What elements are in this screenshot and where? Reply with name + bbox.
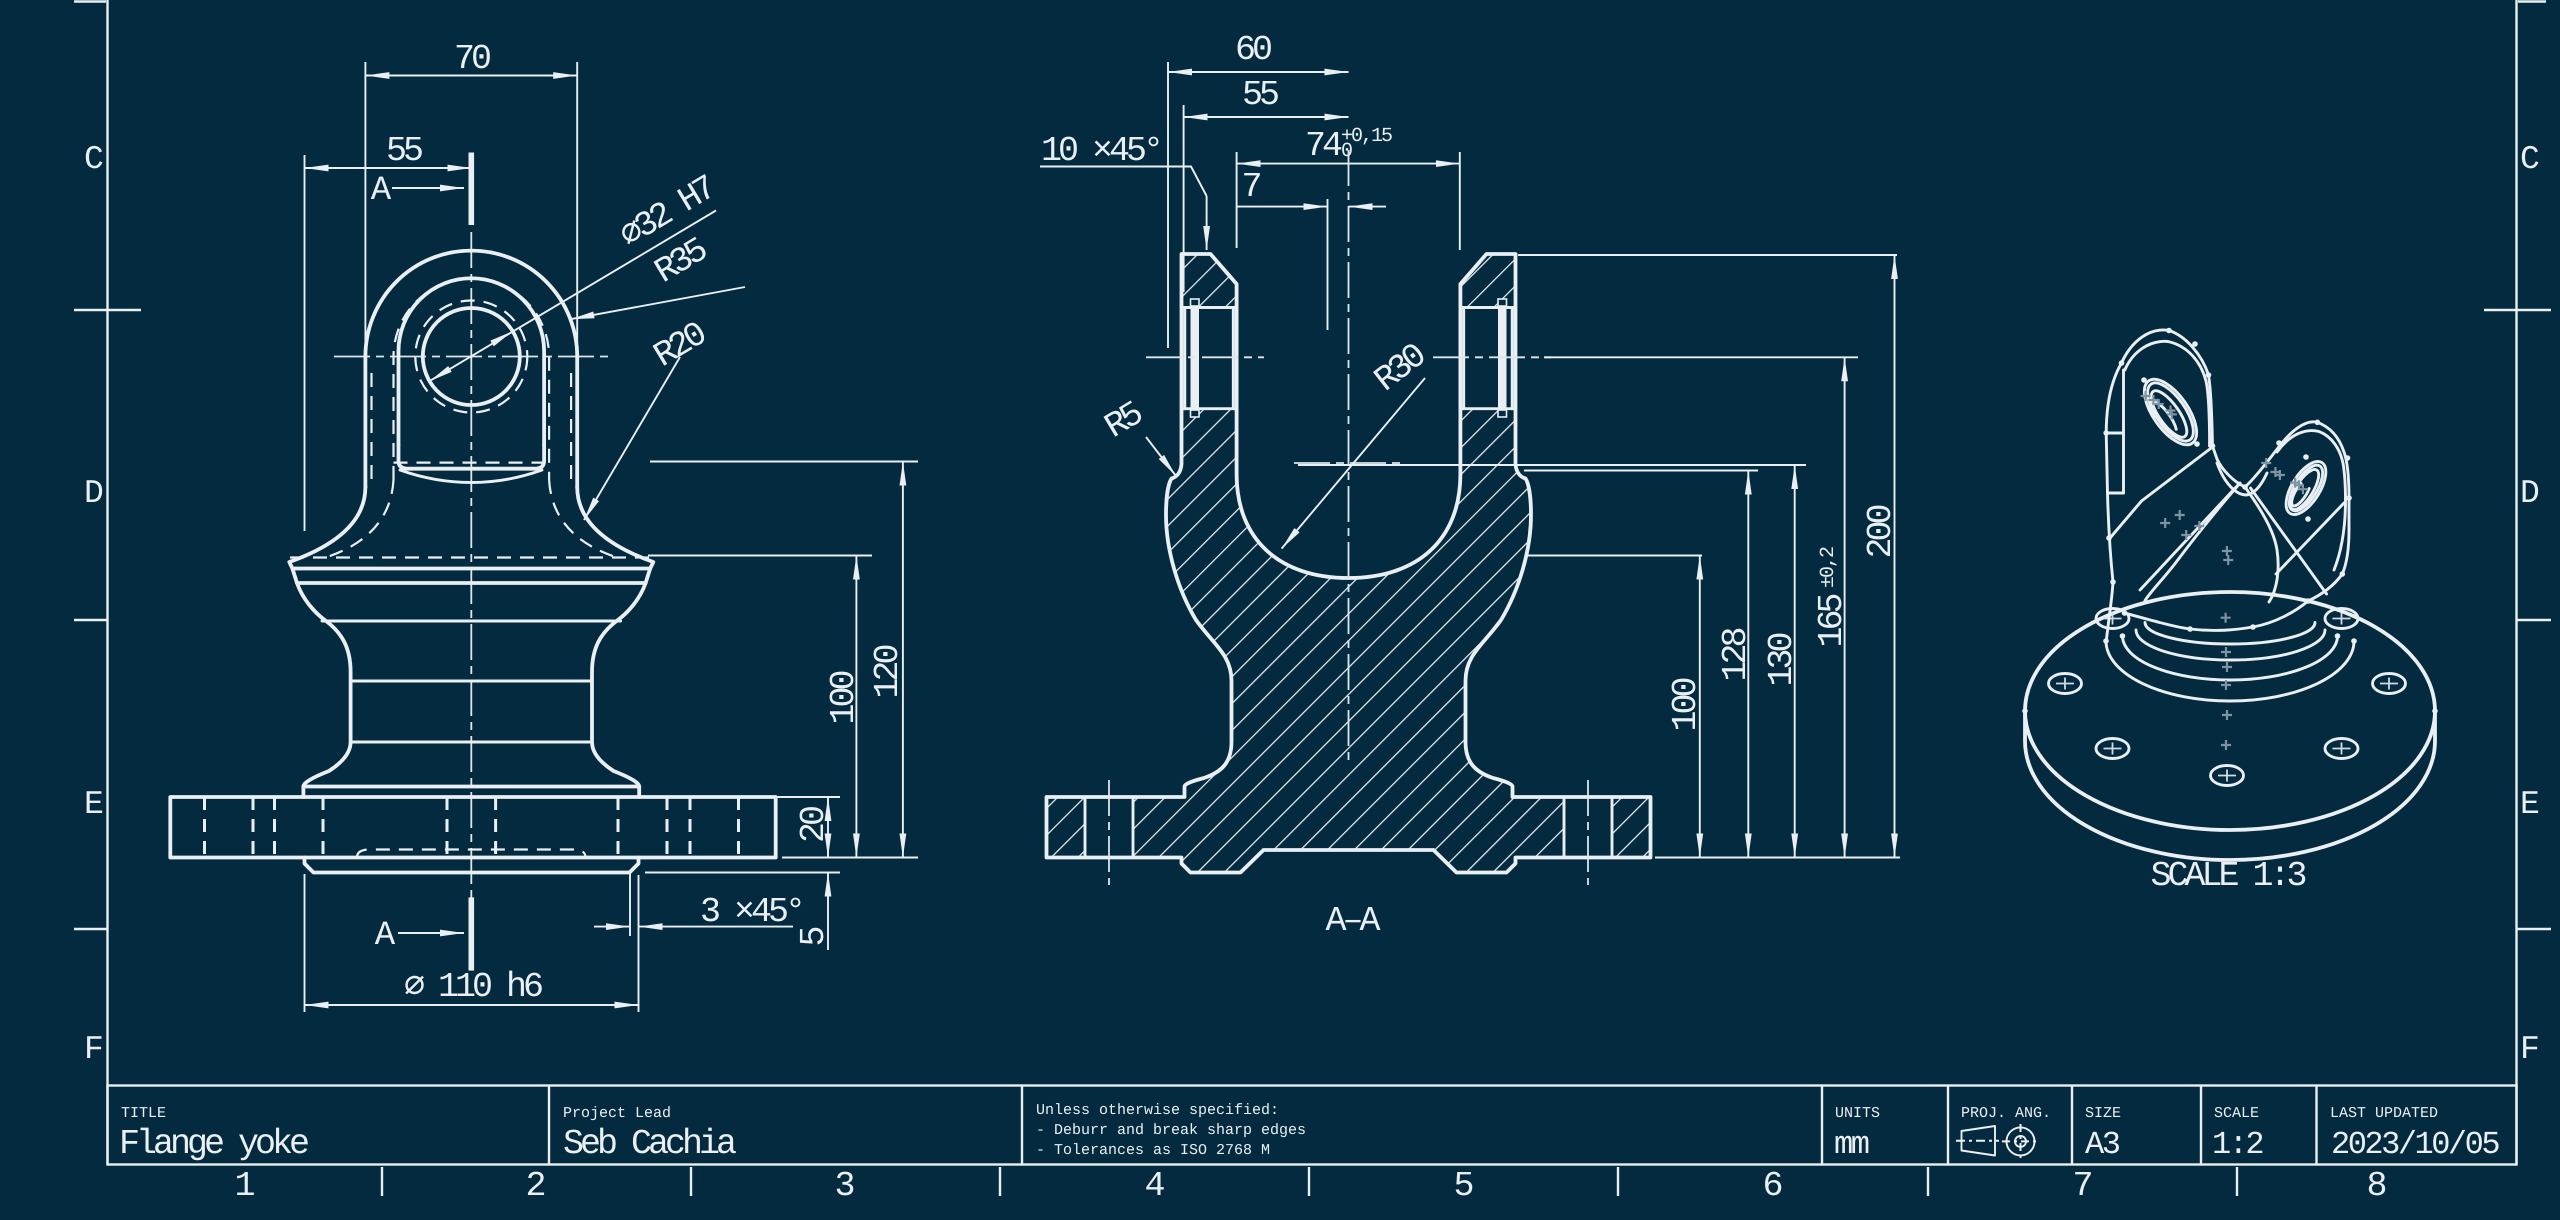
- svg-text:100: 100: [824, 672, 864, 725]
- svg-text:D: D: [84, 475, 104, 512]
- svg-text:Flange yoke: Flange yoke: [119, 1124, 308, 1164]
- svg-text:mm: mm: [1834, 1126, 1869, 1163]
- svg-text:120: 120: [868, 646, 908, 699]
- svg-text:A: A: [375, 917, 396, 955]
- svg-text:LAST UPDATED: LAST UPDATED: [2330, 1105, 2438, 1122]
- svg-text:60: 60: [1235, 30, 1271, 70]
- svg-text:6: 6: [1762, 1166, 1783, 1206]
- svg-text:Project Lead: Project Lead: [563, 1105, 671, 1122]
- svg-text:SCALE 1:3: SCALE 1:3: [2150, 856, 2305, 896]
- svg-text:A3: A3: [2085, 1126, 2120, 1163]
- svg-text:3: 3: [834, 1166, 855, 1206]
- svg-text:165: 165: [1812, 595, 1852, 648]
- svg-text:A–A: A–A: [1325, 901, 1380, 941]
- svg-text:TITLE: TITLE: [121, 1105, 166, 1122]
- svg-text:D: D: [2520, 475, 2540, 512]
- svg-text:E: E: [2520, 786, 2540, 823]
- svg-text:5: 5: [1453, 1166, 1474, 1206]
- svg-text:3 ×45°: 3 ×45°: [700, 892, 802, 932]
- svg-text:128: 128: [1716, 629, 1756, 682]
- svg-text:F: F: [84, 1031, 104, 1068]
- svg-text:- Deburr and break sharp edges: - Deburr and break sharp edges: [1036, 1122, 1306, 1139]
- svg-text:SIZE: SIZE: [2085, 1105, 2121, 1122]
- svg-text:2: 2: [525, 1166, 546, 1206]
- svg-text:70: 70: [454, 39, 490, 79]
- svg-text:C: C: [2520, 141, 2540, 178]
- svg-text:55: 55: [1242, 75, 1278, 115]
- svg-text:7: 7: [1241, 167, 1260, 207]
- svg-text:Seb Cachia: Seb Cachia: [563, 1124, 736, 1164]
- svg-text:SCALE: SCALE: [2214, 1105, 2259, 1122]
- svg-text:F: F: [2520, 1031, 2540, 1068]
- svg-text:4: 4: [1144, 1166, 1165, 1206]
- svg-text:200: 200: [1861, 506, 1901, 559]
- svg-text:A: A: [371, 172, 392, 210]
- svg-text:PROJ. ANG.: PROJ. ANG.: [1961, 1105, 2051, 1122]
- svg-text:130: 130: [1762, 634, 1802, 687]
- svg-text:2023/10/05: 2023/10/05: [2331, 1126, 2499, 1163]
- svg-text:Unless otherwise specified:: Unless otherwise specified:: [1036, 1102, 1279, 1119]
- svg-text:C: C: [84, 141, 104, 178]
- svg-text:74: 74: [1305, 126, 1342, 166]
- svg-text:1:2: 1:2: [2212, 1126, 2262, 1163]
- svg-text:1: 1: [234, 1166, 255, 1206]
- svg-text:±0,2: ±0,2: [1817, 547, 1840, 588]
- svg-text:UNITS: UNITS: [1835, 1105, 1880, 1122]
- svg-text:8: 8: [2366, 1166, 2387, 1206]
- svg-text:100: 100: [1666, 679, 1706, 732]
- svg-text:E: E: [84, 786, 104, 823]
- svg-text:0: 0: [1341, 140, 1352, 163]
- svg-text:55: 55: [386, 131, 422, 171]
- svg-text:7: 7: [2072, 1166, 2093, 1206]
- svg-text:10 ×45°: 10 ×45°: [1041, 131, 1160, 171]
- svg-text:⌀ 110 h6: ⌀ 110 h6: [404, 967, 542, 1007]
- svg-text:- Tolerances as ISO 2768 M: - Tolerances as ISO 2768 M: [1036, 1142, 1270, 1159]
- svg-text:20: 20: [794, 807, 834, 843]
